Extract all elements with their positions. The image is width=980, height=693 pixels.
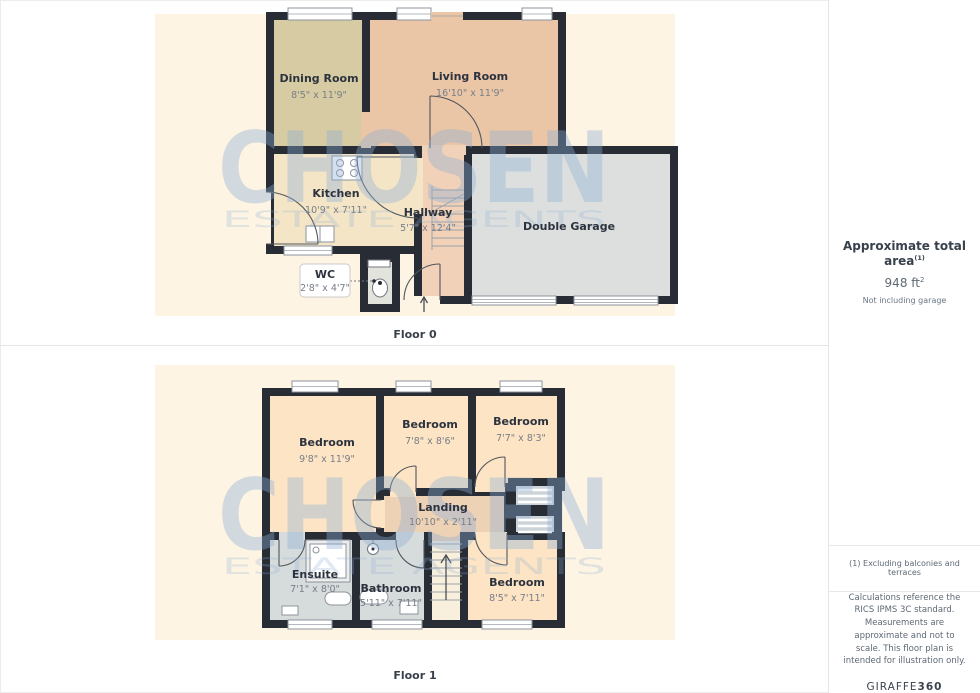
room-name: Kitchen [312, 187, 359, 200]
floorplan-page: CHOSEN ESTATE AGENTS Dining Room 8'5" x … [0, 0, 980, 693]
watermark-estate-agents: ESTATE AGENTS [222, 555, 606, 580]
room-name: Living Room [432, 70, 508, 83]
brand-name: GIRAFFE [867, 681, 918, 693]
room-name: Bedroom [402, 418, 458, 431]
room-dims: 9'8" x 11'9" [299, 454, 355, 465]
room-name: Bedroom [299, 436, 355, 449]
total-area-value-text: 948 ft [885, 276, 920, 290]
room-dims: 5'11" x 7'11" [360, 598, 422, 609]
total-area-footnote-marker: (1) [914, 254, 924, 262]
total-area-title: Approximate total area(1) [837, 239, 972, 268]
total-area-value-sup: 2 [920, 276, 924, 284]
room-dims: 10'10" x 2'11" [409, 517, 477, 528]
room-dims: 7'1" x 8'0" [290, 584, 340, 595]
room-name: Bathroom [361, 582, 422, 595]
total-area-value: 948 ft2 [885, 276, 925, 290]
room-name: Bedroom [493, 415, 549, 428]
room-name: Bedroom [489, 576, 545, 589]
room-dims: 16'10" x 11'9" [436, 88, 504, 99]
room-dims: 5'7" x 12'4" [400, 223, 456, 234]
total-area-box: Approximate total area(1) 948 ft2 Not in… [829, 0, 980, 546]
footnote-text: (1) Excluding balconies and terraces [837, 559, 972, 577]
brand-number: 360 [918, 681, 943, 693]
room-name: Ensuite [292, 568, 338, 581]
room-dims: 2'8" x 4'7" [300, 283, 350, 294]
floor0-panel: CHOSEN ESTATE AGENTS Dining Room 8'5" x … [0, 0, 828, 346]
room-dims: 8'5" x 7'11" [489, 593, 545, 604]
info-sidebar: Approximate total area(1) 948 ft2 Not in… [828, 0, 980, 693]
total-area-title-text: Approximate total area [843, 239, 966, 267]
total-area-note: Not including garage [863, 296, 947, 305]
floor0-plan: CHOSEN ESTATE AGENTS Dining Room 8'5" x … [0, 0, 828, 345]
floor1-label: Floor 1 [393, 669, 436, 682]
room-name: Double Garage [523, 220, 615, 233]
floor1-plan: CHOSEN ESTATE AGENTS Bedroom 9'8" x 11'9… [0, 346, 828, 693]
room-name: WC [315, 268, 335, 281]
room-dims: 7'8" x 8'6" [405, 436, 455, 447]
room-name: Landing [418, 501, 468, 514]
floorplan-area: CHOSEN ESTATE AGENTS Dining Room 8'5" x … [0, 0, 828, 693]
footnote-box: (1) Excluding balconies and terraces [829, 546, 980, 592]
floor0-label: Floor 0 [393, 328, 437, 341]
room-name: Hallway [404, 206, 453, 219]
giraffe360-logo: GIRAFFE360 [867, 681, 943, 693]
room-dims: 8'5" x 11'9" [291, 90, 347, 101]
room-name: Dining Room [279, 72, 358, 85]
room-dims: 10'9" x 7'11" [305, 205, 367, 216]
disclaimer-text: Calculations reference the RICS IPMS 3C … [842, 592, 967, 669]
floor1-panel: CHOSEN ESTATE AGENTS Bedroom 9'8" x 11'9… [0, 346, 828, 693]
disclaimer-box: Calculations reference the RICS IPMS 3C … [829, 592, 980, 693]
room-dims: 7'7" x 8'3" [496, 433, 546, 444]
ensuite-unit-icon [282, 606, 298, 615]
